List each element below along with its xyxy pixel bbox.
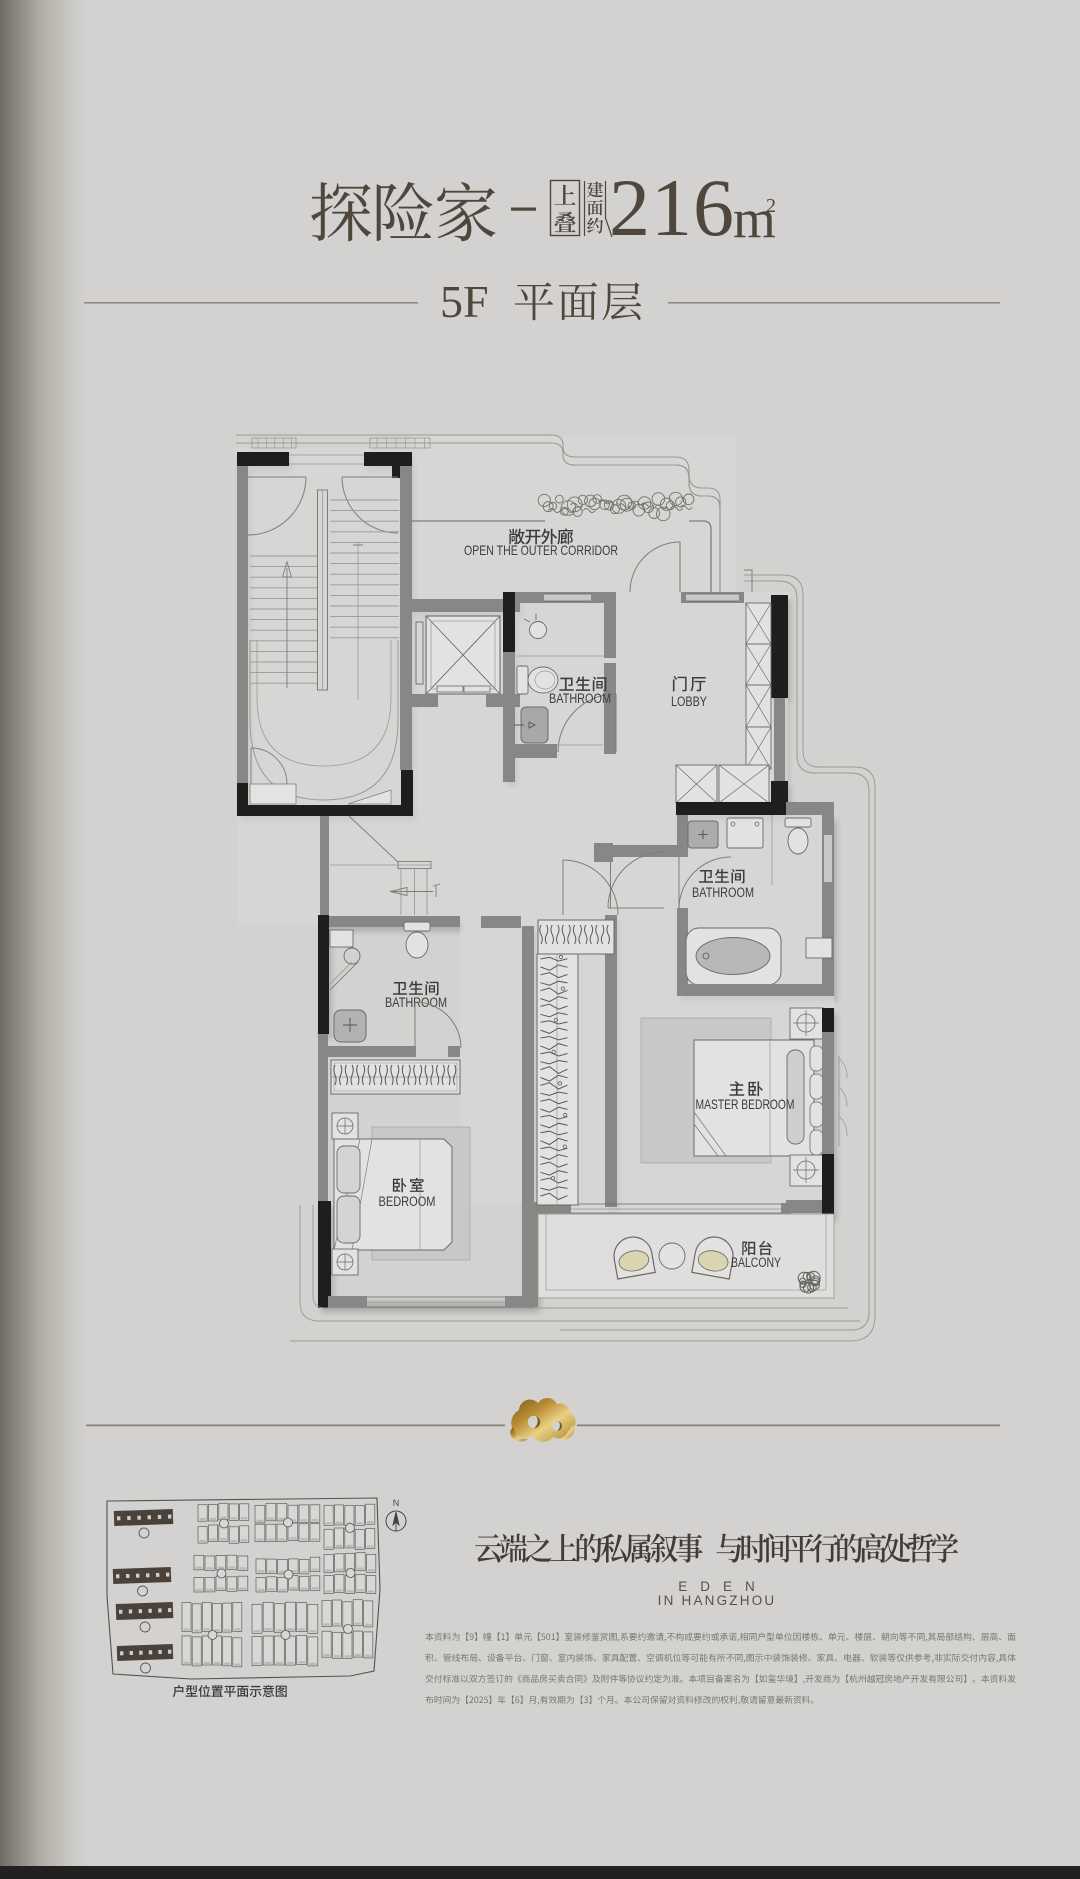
svg-text:2: 2 (766, 195, 776, 217)
svg-text:LOBBY: LOBBY (671, 694, 707, 709)
svg-text:BATHROOM: BATHROOM (692, 885, 754, 900)
svg-text:BEDROOM: BEDROOM (379, 1194, 436, 1209)
svg-text:5F: 5F (440, 276, 489, 327)
svg-text:N: N (393, 1498, 400, 1508)
svg-text:OPEN THE OUTER CORRIDOR: OPEN THE OUTER CORRIDOR (464, 542, 618, 558)
svg-text:BALCONY: BALCONY (731, 1255, 781, 1270)
svg-text:216: 216 (609, 162, 735, 253)
svg-text:IN HANGZHOU: IN HANGZHOU (658, 1593, 777, 1608)
svg-text:EDEN: EDEN (678, 1579, 768, 1594)
svg-text:MASTER BEDROOM: MASTER BEDROOM (696, 1096, 795, 1112)
svg-text:BATHROOM: BATHROOM (549, 691, 611, 706)
